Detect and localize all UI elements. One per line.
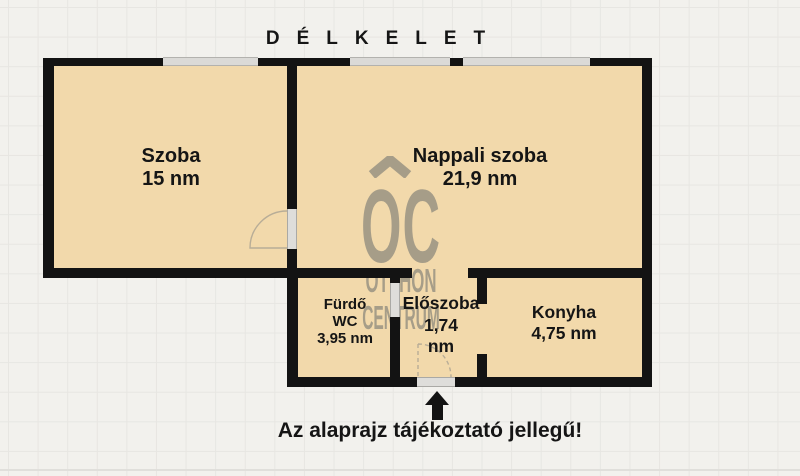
room-label-furdo: Fürdő WC 3,95 nm (317, 296, 373, 347)
room-area: 3,95 nm (317, 330, 373, 347)
room-label-nappali: Nappali szoba 21,9 nm (413, 145, 547, 191)
room-area: 21,9 nm (413, 168, 547, 191)
floor-plan-canvas: DÉLKELET OC OTTHON CENTRUM Szoba 15 nm N (0, 0, 800, 476)
entrance-arrow-icon (425, 391, 449, 420)
room-name: Előszoba (403, 293, 480, 315)
room-name: Szoba (142, 145, 201, 168)
room-label-szoba: Szoba 15 nm (142, 145, 201, 191)
room-area: 4,75 nm (531, 323, 596, 344)
room-area: 15 nm (142, 168, 201, 191)
arrow-head (425, 391, 449, 405)
door-swing-overlay (0, 0, 800, 476)
room-area-unit: nm (403, 336, 480, 358)
room-name: Nappali szoba (413, 145, 547, 168)
door-arc-szoba (250, 211, 287, 248)
room-label-eloszoba: Előszoba 1,74 nm (403, 293, 480, 358)
disclaimer-text: Az alaprajz tájékoztató jellegű! (278, 419, 583, 443)
room-name: Konyha (531, 302, 596, 323)
room-area: 1,74 (403, 315, 480, 337)
room-name2: WC (317, 313, 373, 330)
room-label-konyha: Konyha 4,75 nm (531, 302, 596, 344)
orientation-label: DÉLKELET (266, 28, 502, 50)
room-name: Fürdő (317, 296, 373, 313)
arrow-stem (432, 404, 443, 420)
